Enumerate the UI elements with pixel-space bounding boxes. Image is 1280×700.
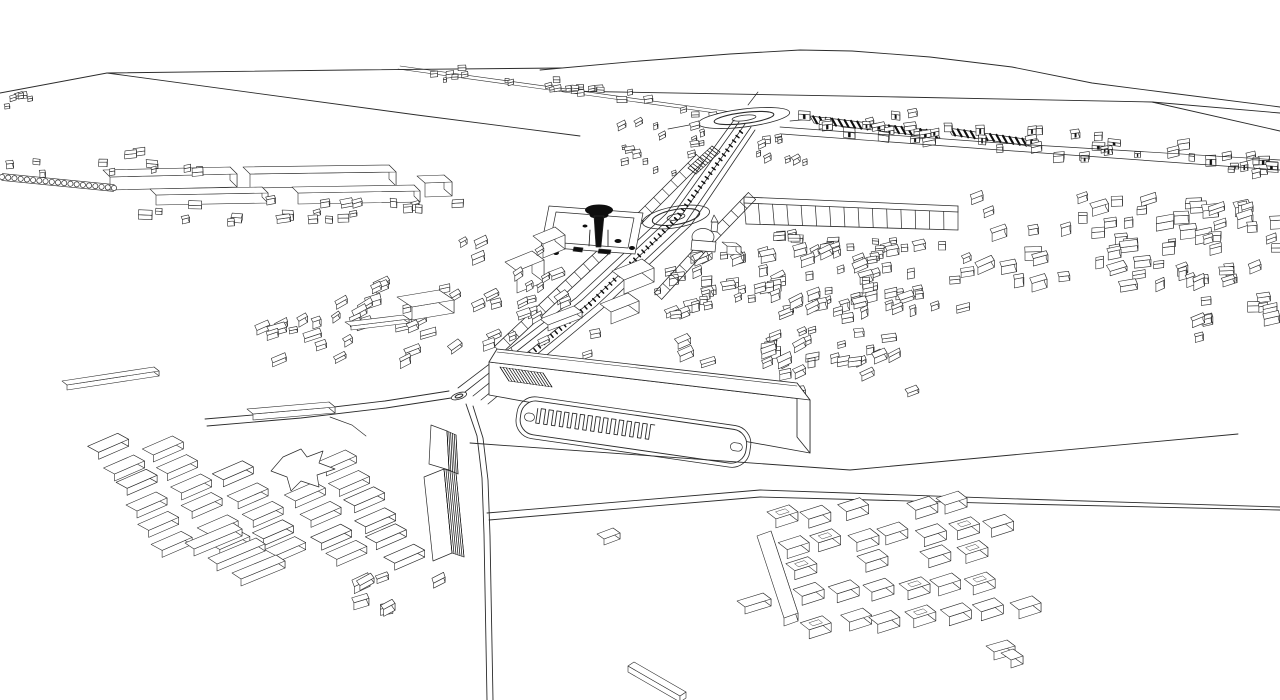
swg-curve-bar [247, 402, 335, 420]
southeast-courtyard-grid [767, 491, 1041, 639]
east-arcade [744, 197, 958, 230]
far-left-specks [4, 92, 32, 110]
foreground-diagonal-bar [628, 662, 686, 700]
bent-building-shade-upper [447, 431, 458, 474]
west-warehouse-e [417, 175, 452, 197]
axis-slab-4 [600, 293, 639, 324]
swg-top-bar [62, 367, 159, 390]
east-market-strip [799, 108, 1279, 179]
arch-chain [0, 174, 117, 192]
junction-teardrop-island [450, 390, 467, 401]
blocks-south-of-junction [352, 572, 445, 617]
north-roundabout [697, 103, 791, 132]
star-building [271, 449, 335, 491]
west-warehouse-a [103, 167, 237, 190]
axis-slab-3 [612, 259, 654, 294]
nw-street-buildings [430, 65, 717, 119]
east-dense-band [961, 190, 1280, 292]
west-warehouse-b [243, 165, 396, 188]
right-edge-mid [1191, 292, 1280, 342]
top-axis-west-blocks [617, 117, 705, 176]
city-wireframe-drawing [0, 0, 1280, 700]
west-warehouse-c [150, 187, 268, 205]
isolated-box-center [597, 528, 620, 545]
swg-curve-tail [330, 417, 366, 436]
top-axis-east-blocks [756, 134, 807, 166]
city-model-viewport [0, 0, 1280, 700]
seg-small-bar [737, 593, 771, 614]
seg-l-block-b [1001, 649, 1023, 668]
